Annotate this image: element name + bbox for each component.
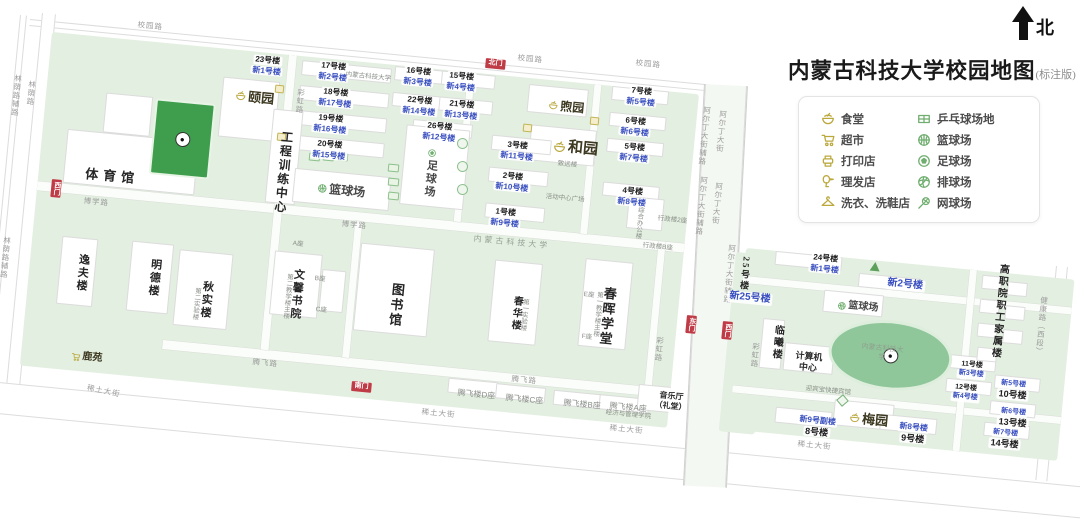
legend-item-label: 排球场	[937, 174, 972, 190]
building-pair-label: 新6号楼13号楼	[996, 407, 1030, 431]
legend-item-label: 乒乓球场地	[937, 111, 995, 127]
shop-marker	[523, 124, 533, 133]
basketball-icon	[917, 133, 931, 147]
supermarket-icon	[71, 351, 81, 361]
canteen-icon	[548, 100, 559, 111]
legend-item: 网球场	[917, 192, 1005, 213]
north-label: 北	[1036, 14, 1054, 40]
legend-panel: 食堂超市打印店理发店洗衣、洗鞋店 乒乓球场地篮球场足球场排球场网球场	[798, 96, 1040, 223]
legend-item: 篮球场	[917, 129, 1005, 150]
building-pair-label: 12号楼新4号楼	[950, 383, 981, 404]
legend-item: 足球场	[917, 150, 1005, 171]
building-number: 新1号楼	[808, 263, 841, 276]
building-pair-label: 19号楼新16号楼	[311, 112, 350, 137]
building-block	[1007, 281, 1028, 297]
label-text: 和园	[567, 138, 599, 159]
tennis-icon	[917, 196, 931, 210]
building-pair-label: 3号楼新11号楼	[498, 139, 536, 164]
legend-item-label: 打印店	[841, 153, 876, 169]
building-pair-label: 新9号副楼8号楼	[796, 414, 838, 440]
road-label: 稀土大街	[421, 407, 456, 419]
legend-item: 超市	[821, 129, 917, 150]
label-text: 颐园	[247, 89, 274, 107]
legend-item-label: 网球场	[937, 195, 972, 211]
football-field: ●	[149, 98, 216, 179]
building-number: 4号楼	[620, 185, 645, 197]
building-number: 新4号楼	[444, 81, 477, 94]
building-block	[1002, 329, 1023, 345]
building-number: 10号楼	[996, 388, 1029, 402]
volleyball-icon	[917, 175, 931, 189]
legend-item-label: 理发店	[841, 174, 876, 190]
main-campus-area: ●	[20, 32, 699, 428]
north-arrow-icon	[1012, 6, 1034, 40]
road-label: 稀土大街	[609, 423, 644, 435]
building-number: 9号楼	[899, 432, 927, 445]
legend-item-label: 足球场	[937, 153, 972, 169]
road-label: 稀土大街	[797, 439, 832, 451]
building-number: 6号楼	[623, 115, 648, 127]
facility-marker	[388, 163, 400, 172]
building-number: 2号楼	[500, 171, 525, 183]
building-pair-label: 18号楼新17号楼	[316, 86, 355, 111]
label-text: 煦园	[560, 99, 585, 116]
facility-marker	[388, 191, 400, 200]
building-number: 新5号楼	[624, 96, 657, 109]
building-number: 14号楼	[988, 437, 1021, 451]
road-segment	[162, 340, 671, 398]
legend-item: 理发店	[821, 171, 917, 192]
building-number: 新11号楼	[498, 150, 535, 163]
laundry-icon	[821, 196, 835, 210]
building-number: 新10号楼	[493, 181, 531, 194]
shop-marker	[275, 85, 285, 94]
football-icon	[917, 154, 931, 168]
legend-item: 排球场	[917, 171, 1005, 192]
building-pair-label: 新7号楼14号楼	[988, 428, 1022, 452]
building-number: 新9号楼	[488, 217, 521, 230]
annotation: E座	[583, 291, 595, 300]
legend-item: 乒乓球场地	[917, 108, 1005, 129]
legend-item: 食堂	[821, 108, 917, 129]
building-name: 音乐厅（礼堂）	[654, 390, 688, 412]
building-number: 8号楼	[803, 425, 831, 438]
basketball-icon	[317, 183, 328, 194]
building-pair-label: 1号楼新9号楼	[488, 206, 522, 230]
building-number: 3号楼	[505, 140, 530, 152]
building-block	[103, 92, 154, 136]
page-title-suffix: (标注版)	[1036, 69, 1076, 81]
shop-marker	[590, 117, 600, 126]
building-number: 5号楼	[622, 141, 647, 153]
building-number: 新3号楼	[401, 76, 434, 89]
annotation: C座	[315, 306, 327, 315]
legend-column-sports: 乒乓球场地篮球场足球场排球场网球场	[917, 108, 1005, 213]
road-label: 校园路	[517, 53, 543, 64]
building-number: 1号楼	[493, 206, 518, 218]
legend-item-label: 食堂	[841, 111, 864, 127]
building-pair-label: 2号楼新10号楼	[493, 170, 532, 195]
building-pair-label: 16号楼新3号楼	[401, 65, 435, 89]
road-label: 校园路	[635, 58, 661, 69]
facility-marker	[388, 177, 400, 186]
pingpong-icon	[917, 112, 931, 126]
road-label: 林荫路辅路	[10, 74, 23, 117]
road-segment	[645, 241, 666, 387]
building-number: 新6号楼	[618, 126, 651, 139]
building-pair-label: 5号楼新7号楼	[617, 141, 651, 165]
legend-item-label: 洗衣、洗鞋店	[841, 195, 910, 211]
basketball-icon	[837, 300, 847, 310]
building-number: 新2号楼	[316, 71, 349, 84]
legend-item: 洗衣、洗鞋店	[821, 192, 917, 213]
canteen-icon	[821, 112, 835, 126]
building-number: 新1号楼	[250, 65, 283, 78]
building-pair-label: 20号楼新15号楼	[310, 138, 349, 163]
building-pair-label: 11号楼新3号楼	[956, 360, 987, 381]
building-pair-label: 26号楼新12号楼	[420, 120, 459, 145]
print-shop-icon	[821, 154, 835, 168]
building-pair-label: 新5号楼10号楼	[996, 379, 1030, 403]
building-block	[1004, 305, 1025, 321]
football-icon	[427, 148, 437, 158]
building-name: 计算机中心	[794, 350, 823, 374]
map-title: 内蒙古科技大学校园地图(标注版)	[788, 54, 1076, 85]
building-number: 新4号楼	[950, 392, 980, 403]
building-pair-label: 22号楼新14号楼	[400, 94, 439, 119]
label-text: 鹿苑	[82, 351, 103, 365]
building-pair-label: 23号楼新1号楼	[250, 54, 284, 78]
legend-item-label: 超市	[841, 132, 864, 148]
annotation: A座	[292, 240, 304, 249]
annotation: B座	[314, 275, 326, 284]
label-text: 梅园	[861, 411, 888, 429]
barber-icon	[821, 175, 835, 189]
building-pair-label: 24号楼新1号楼	[808, 252, 842, 276]
building-pair-label: 15号楼新4号楼	[444, 70, 478, 94]
legend-column-services: 食堂超市打印店理发店洗衣、洗鞋店	[821, 108, 917, 213]
soccer-ball-icon: ●	[174, 131, 190, 147]
supermarket-icon	[821, 133, 835, 147]
landmark-icon	[870, 262, 881, 272]
north-indicator: 北	[1012, 6, 1054, 40]
canteen-icon	[235, 90, 247, 102]
page-title: 内蒙古科技大学校园地图	[788, 59, 1036, 83]
building-number: 7号楼	[629, 85, 654, 97]
building-number: 新7号楼	[617, 152, 650, 165]
building-pair-label: 新8号楼9号楼	[896, 421, 930, 446]
canteen-icon	[849, 412, 861, 424]
canteen-icon	[553, 139, 567, 153]
building-number: 新3号楼	[956, 369, 986, 380]
building-pair-label: 4号楼新8号楼	[615, 185, 649, 209]
legend-item: 打印店	[821, 150, 917, 171]
building-pair-label: 6号楼新6号楼	[618, 115, 652, 139]
building-pair-label: 7号楼新5号楼	[624, 85, 658, 109]
legend-item-label: 篮球场	[937, 132, 972, 148]
annotation: F座	[581, 333, 592, 342]
building-pair-label: 21号楼新13号楼	[442, 98, 481, 123]
road-label: 林荫路辅路	[0, 236, 12, 279]
